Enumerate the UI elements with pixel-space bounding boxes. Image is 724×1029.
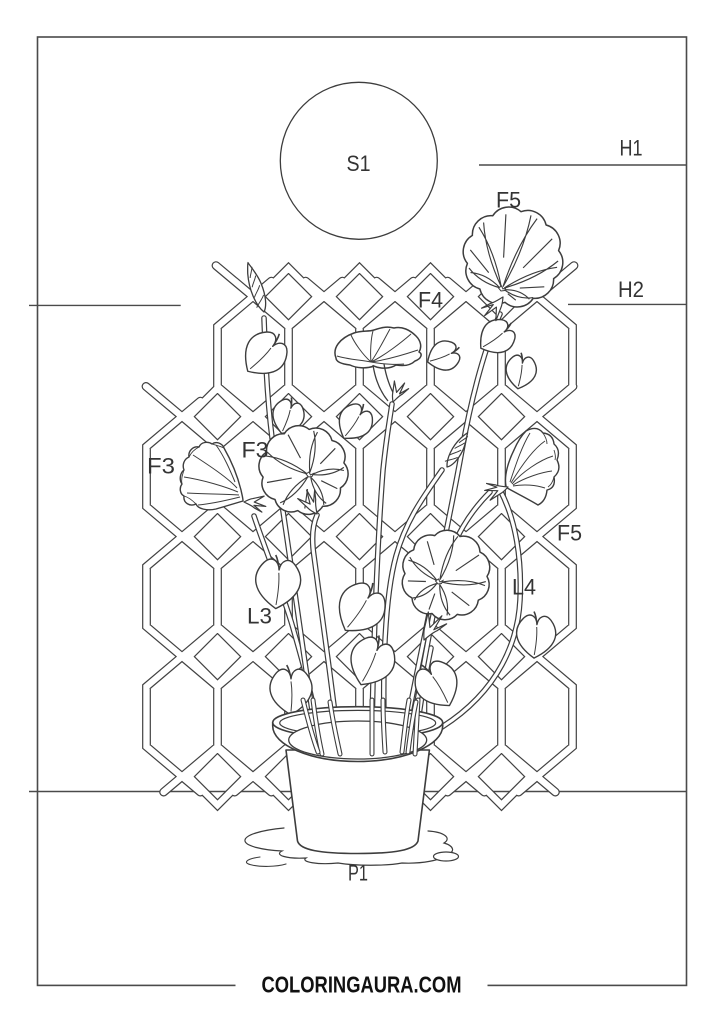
svg-text:P1: P1 [348,860,368,885]
svg-text:F3: F3 [147,453,175,478]
svg-text:F3: F3 [242,437,269,462]
svg-text:H2: H2 [618,277,644,302]
svg-text:F5: F5 [496,187,521,212]
svg-text:F4: F4 [418,287,443,312]
svg-text:L3: L3 [247,603,272,628]
svg-text:COLORINGAURA.COM: COLORINGAURA.COM [262,972,462,998]
svg-text:H1: H1 [620,135,643,160]
svg-text:L4: L4 [512,574,536,599]
svg-text:F5: F5 [557,520,582,545]
svg-text:S1: S1 [347,151,371,176]
